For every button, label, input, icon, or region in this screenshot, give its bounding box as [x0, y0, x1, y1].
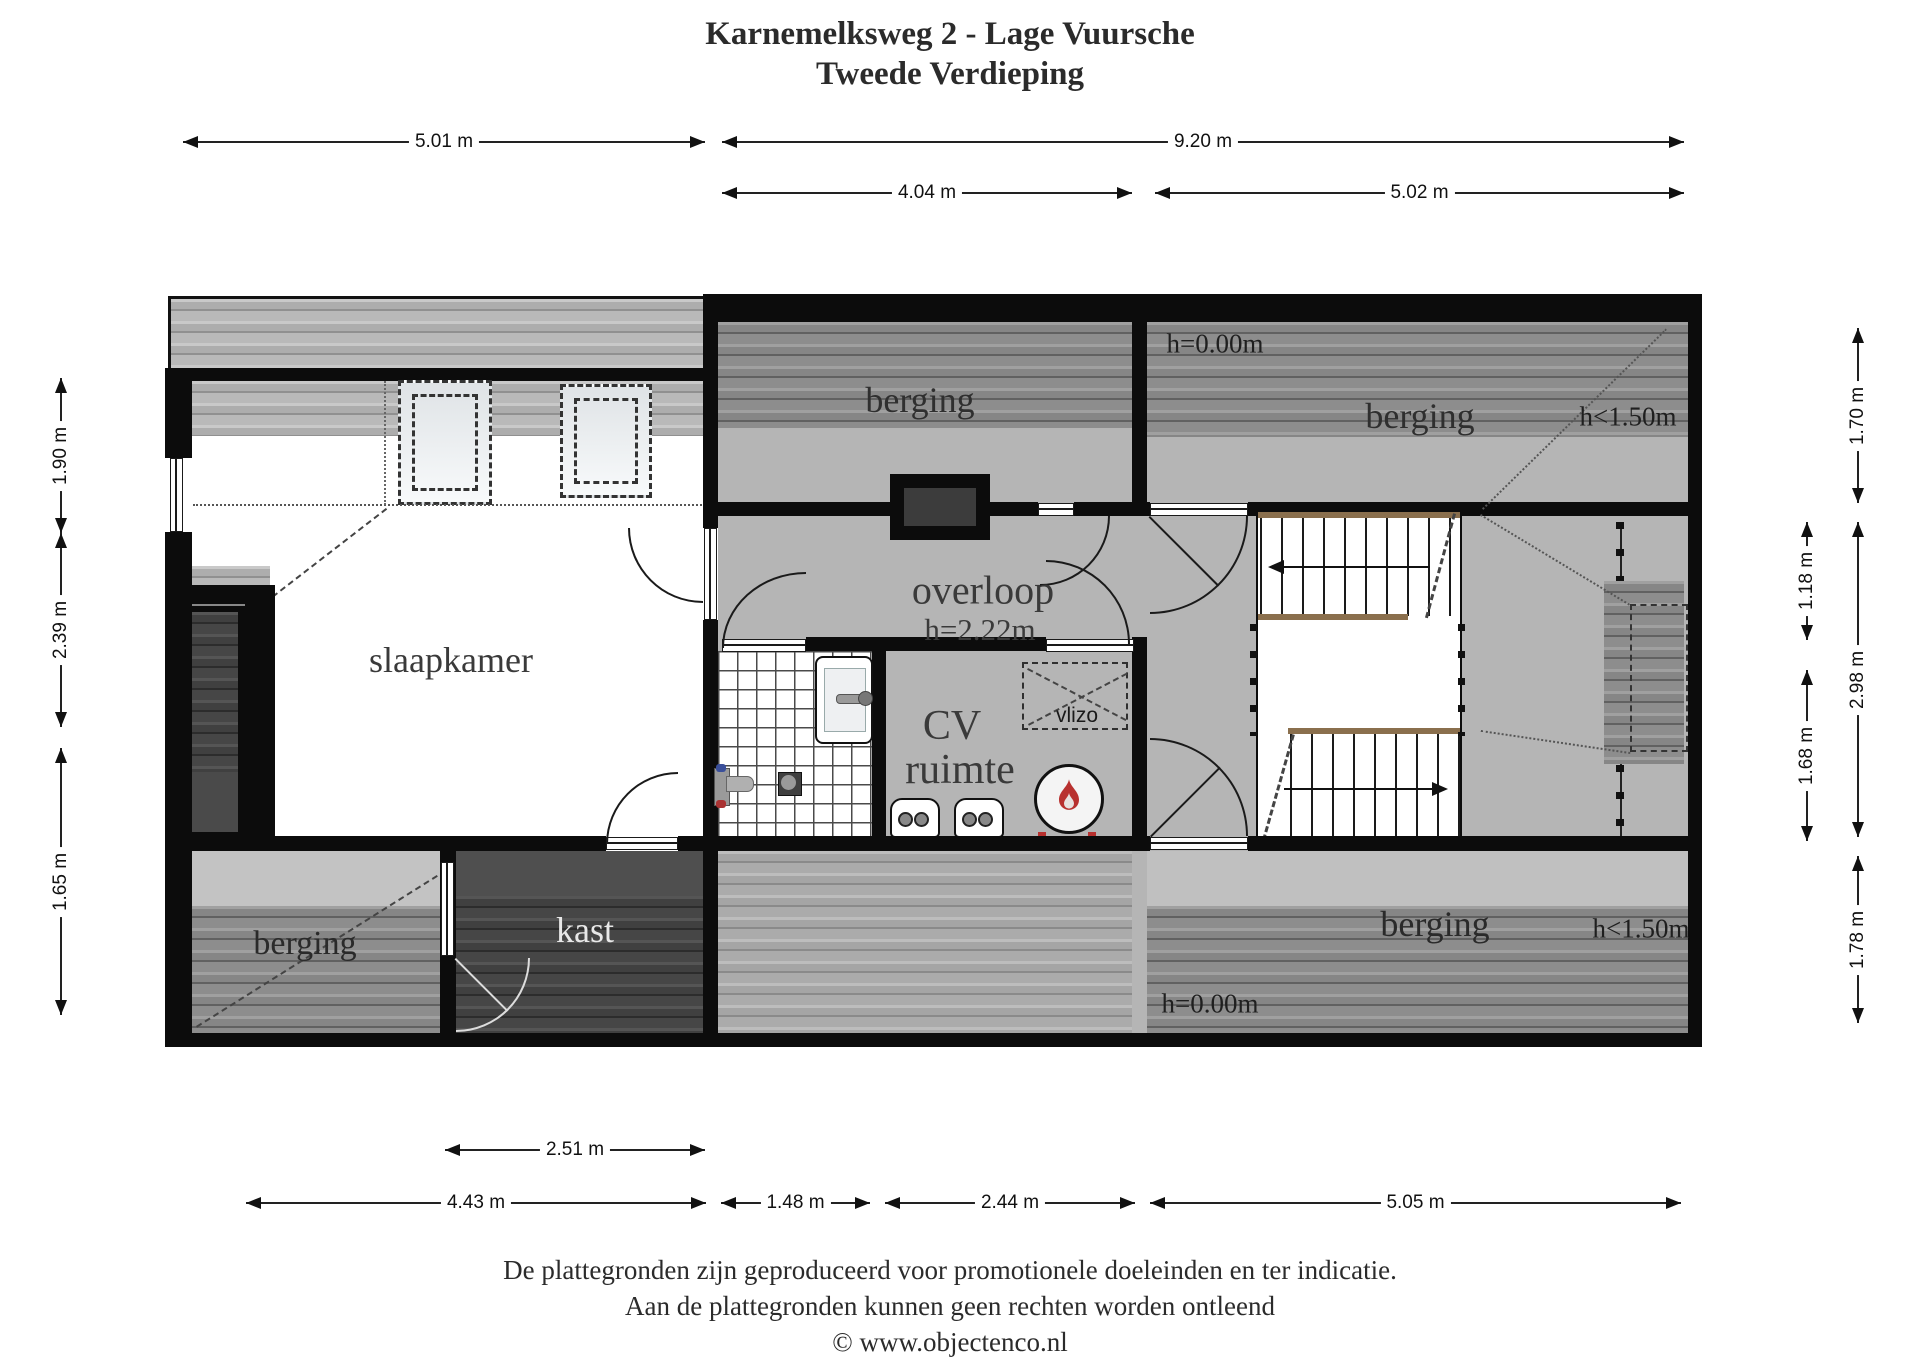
wall-outer-right [1688, 294, 1702, 1047]
dim-label: 1.70 m [1847, 380, 1869, 450]
dim-arrow [1852, 328, 1864, 343]
dim-arrow [1801, 522, 1813, 537]
stair-arrow-up-line [1278, 566, 1430, 568]
room-berging-br-floor [1147, 851, 1688, 906]
window-left-wall [170, 458, 183, 532]
dim-arrow [1801, 670, 1813, 685]
dim-arrow [721, 1197, 736, 1209]
dim-arrow [722, 136, 737, 148]
roof-window-2-inner [574, 398, 638, 484]
wall-mid-bottom [703, 836, 1150, 851]
stair-arrow-up-head [1268, 560, 1284, 574]
stair-railing-posts-left [1250, 624, 1257, 736]
note-h-150-top: h<1.50m [1580, 402, 1677, 433]
title-line2: Tweede Verdieping [0, 54, 1900, 94]
stair-void-dark [192, 772, 238, 832]
dim-label: 1.78 m [1847, 904, 1869, 974]
dim-arrow [691, 1197, 706, 1209]
roof-window-1-inner [412, 394, 478, 491]
dim-arrow [1852, 822, 1864, 837]
dim-arrow [1669, 136, 1684, 148]
height-limit-dotted-line [193, 504, 710, 506]
dim-label: 2.39 m [50, 595, 72, 665]
dim-arrow [1852, 522, 1864, 537]
dim-arrow [55, 378, 67, 393]
dim-label: 1.48 m [760, 1192, 830, 1214]
dim-label: 1.90 m [50, 420, 72, 490]
room-label-overloop: overloop [912, 567, 1054, 614]
wall-left-mid [165, 532, 192, 585]
shower-cold-cap [716, 764, 726, 772]
room-label-berging-bottom-right: berging [1380, 903, 1489, 945]
room-label-berging-top-right: berging [1365, 395, 1474, 437]
dim-label: 1.65 m [50, 846, 72, 916]
dim-label: 5.01 m [409, 131, 479, 153]
cv-flame-icon [1054, 778, 1084, 818]
roof-lower-middle [718, 851, 1132, 1033]
dim-label: 2.98 m [1847, 644, 1869, 714]
room-label-slaapkamer: slaapkamer [369, 639, 533, 681]
dim-arrow [1120, 1197, 1135, 1209]
boiler-vessel-1-cap-a [898, 812, 913, 827]
disclaimer: De plattegronden zijn geproduceerd voor … [0, 1252, 1900, 1358]
dotted-vertical-line [384, 381, 386, 505]
door-berging-tm [1038, 503, 1074, 516]
stair-arrow-down-line [1284, 788, 1436, 790]
disclaimer-line1: De plattegronden zijn geproduceerd voor … [0, 1252, 1900, 1288]
wall-bathroom-top [806, 637, 872, 651]
dim-label: 2.51 m [540, 1139, 610, 1161]
wall-right-bottom [1248, 836, 1688, 851]
roof-eaves-top-left [168, 296, 720, 371]
dim-label: 5.05 m [1380, 1192, 1450, 1214]
dim-arrow [1801, 625, 1813, 640]
wall-mid-right-upper [1132, 322, 1147, 516]
dim-arrow [885, 1197, 900, 1209]
boiler-vessel-2-cap-b [978, 812, 993, 827]
dim-arrow [183, 136, 198, 148]
dim-arrow [55, 712, 67, 727]
wall-outer-bottom [165, 1033, 1702, 1047]
dim-arrow [1669, 187, 1684, 199]
dim-arrow [55, 518, 67, 533]
shower-hot-cap [716, 800, 726, 808]
dim-arrow [445, 1144, 460, 1156]
lower-roof-over-stairs [192, 612, 238, 772]
wall-left-lower [165, 851, 192, 1047]
wall-mid-left-lower [703, 620, 718, 1047]
room-label-overloop-height: h=2.22m [924, 612, 1035, 648]
sink-tap-knob [858, 691, 873, 706]
chimney-inner [904, 488, 976, 526]
label-vlizo: vlizo [1056, 704, 1098, 728]
dim-label: 4.43 m [441, 1192, 511, 1214]
copyright: © www.objectenco.nl [0, 1324, 1900, 1358]
dim-arrow [1117, 187, 1132, 199]
dim-label: 4.04 m [892, 182, 962, 204]
dim-arrow [1852, 488, 1864, 503]
dim-arrow [722, 187, 737, 199]
dim-arrow [1150, 1197, 1165, 1209]
shower-spout [726, 776, 754, 792]
room-label-cv-line1: CV [923, 702, 981, 750]
boiler-vessel-2-cap-a [962, 812, 977, 827]
wall-bathroom-cv [872, 637, 886, 851]
dim-arrow [1801, 826, 1813, 841]
boiler-vessel-1-cap-b [914, 812, 929, 827]
dim-arrow [690, 136, 705, 148]
room-label-berging-top-middle: berging [865, 379, 974, 421]
disclaimer-line2: Aan de plattegronden kunnen geen rechten… [0, 1288, 1900, 1324]
dim-arrow [246, 1197, 261, 1209]
page-title: Karnemelksweg 2 - Lage Vuursche Tweede V… [0, 14, 1900, 94]
floor-drain-grate [781, 775, 796, 790]
dim-label: 2.44 m [975, 1192, 1045, 1214]
door-kast-glazed [441, 862, 454, 956]
room-label-kast: kast [556, 909, 614, 951]
wall-mid-right-lower [1132, 637, 1147, 851]
dim-arrow [55, 1000, 67, 1015]
dim-arrow [1852, 1008, 1864, 1023]
dim-arrow [1155, 187, 1170, 199]
door-berging-br [1150, 837, 1248, 850]
roof-piece-small [192, 566, 270, 585]
floorplan-canvas: Karnemelksweg 2 - Lage Vuursche Tweede V… [0, 0, 1920, 1358]
room-label-berging-bottom-left: berging [253, 925, 356, 963]
note-h-zero-top: h=0.00m [1167, 329, 1264, 360]
wall-slaapkamer-bottom-left [165, 836, 606, 851]
stair-void [1259, 620, 1459, 728]
dim-arrow [1852, 856, 1864, 871]
dim-arrow [55, 533, 67, 548]
door-slaapkamer-overloop [704, 528, 717, 620]
dim-label: 9.20 m [1168, 131, 1238, 153]
void-edge-line [192, 604, 245, 606]
dim-label: 5.02 m [1384, 182, 1454, 204]
dormer-dashed-outline [1630, 604, 1688, 752]
room-label-cv-line2: ruimte [905, 746, 1015, 794]
door-berging-tr [1150, 503, 1248, 516]
stair-railing-posts-right [1458, 624, 1465, 736]
dim-label: 1.18 m [1796, 546, 1818, 616]
dim-arrow [55, 748, 67, 763]
note-h-150-bottom: h<1.50m [1593, 914, 1690, 945]
dim-arrow [690, 1144, 705, 1156]
dim-arrow [855, 1197, 870, 1209]
wall-left-upper [165, 368, 192, 458]
dim-arrow [1666, 1197, 1681, 1209]
stair-arrow-down-head [1432, 782, 1448, 796]
wall-mid-left-upper [703, 294, 718, 528]
title-line1: Karnemelksweg 2 - Lage Vuursche [0, 14, 1900, 54]
dim-label: 1.68 m [1796, 720, 1818, 790]
wall-outer-top [703, 294, 1702, 322]
note-h-zero-bottom: h=0.00m [1162, 989, 1259, 1020]
